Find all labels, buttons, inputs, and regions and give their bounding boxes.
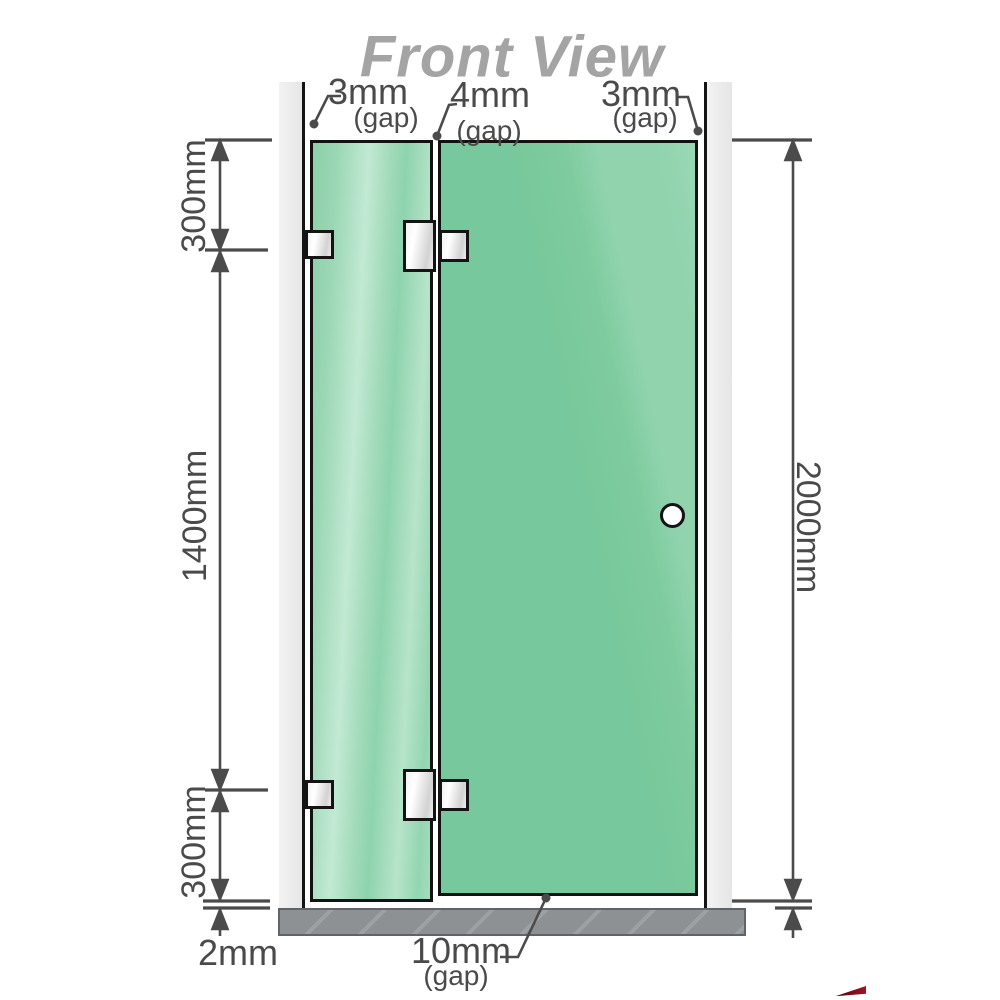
gap-label-right-note: (gap) bbox=[612, 104, 677, 132]
dim-label-300-top: 300mm bbox=[177, 139, 211, 252]
left-wall bbox=[279, 82, 305, 908]
gap-label-left-note: (gap) bbox=[353, 104, 418, 132]
hinge-top-inner-plate bbox=[439, 230, 469, 262]
hinge-bottom-inner-plate bbox=[439, 779, 469, 811]
gap-label-10mm-note: (gap) bbox=[423, 962, 488, 990]
right-wall bbox=[704, 82, 732, 908]
dim-label-300-bottom: 300mm bbox=[177, 785, 211, 898]
gap-label-middle-value: 4mm bbox=[450, 77, 530, 113]
wall-bracket-bottom bbox=[305, 780, 334, 809]
wall-bracket-top bbox=[305, 230, 334, 259]
dim-label-2000: 2000mm bbox=[791, 461, 825, 593]
hinge-top-outer-plate bbox=[403, 220, 436, 272]
floor-bar bbox=[278, 908, 746, 936]
dim-label-2mm: 2mm bbox=[198, 935, 278, 971]
hinge-bottom-outer-plate bbox=[403, 769, 436, 821]
dim-label-1400: 1400mm bbox=[178, 450, 212, 582]
brand-mark bbox=[836, 986, 866, 996]
gap-label-middle-note: (gap) bbox=[456, 117, 521, 145]
diagram-canvas: Front View 3mm (gap) 4mm (gap) 3mm (gap)… bbox=[0, 0, 1000, 1000]
door-glass-panel bbox=[438, 140, 698, 896]
door-knob bbox=[660, 503, 685, 528]
